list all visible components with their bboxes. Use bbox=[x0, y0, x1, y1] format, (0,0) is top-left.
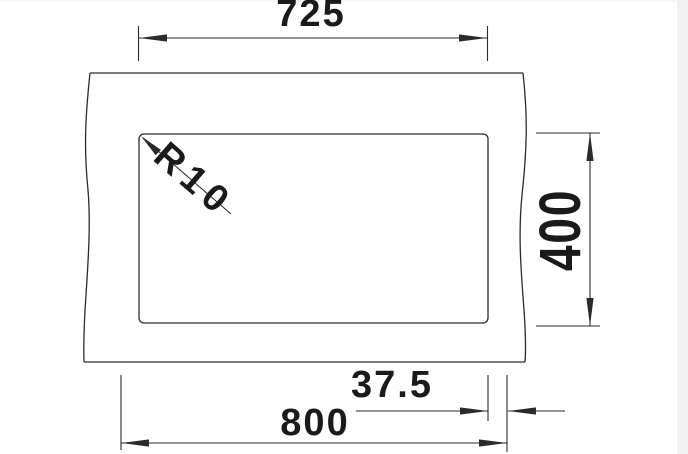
dim-400-arrow-bottom-icon bbox=[586, 298, 593, 326]
right-edge-strip bbox=[677, 0, 688, 454]
dim-label-overall-width: 800 bbox=[255, 404, 375, 442]
dim-400-arrow-top-icon bbox=[586, 133, 593, 161]
dim-725-arrow-left-icon bbox=[139, 34, 167, 41]
dim-label-flange-offset: 37.5 bbox=[351, 366, 433, 404]
dim-725-arrow-right-icon bbox=[459, 34, 487, 41]
worktop-left-broken-edge bbox=[84, 73, 90, 362]
worktop-outline bbox=[84, 73, 526, 362]
dim-800-arrow-right-icon bbox=[479, 439, 507, 446]
dim-375-arrow-right-icon bbox=[508, 407, 536, 414]
dim-label-bowl-depth: 400 bbox=[531, 182, 591, 278]
drawing-canvas: 725 400 800 37.5 R10 bbox=[0, 0, 688, 454]
worktop-right-broken-edge bbox=[520, 73, 526, 362]
dim-375-arrow-left-icon bbox=[460, 407, 488, 414]
dim-label-cutout-width: 725 bbox=[251, 0, 371, 33]
dim-800-arrow-left-icon bbox=[121, 439, 149, 446]
